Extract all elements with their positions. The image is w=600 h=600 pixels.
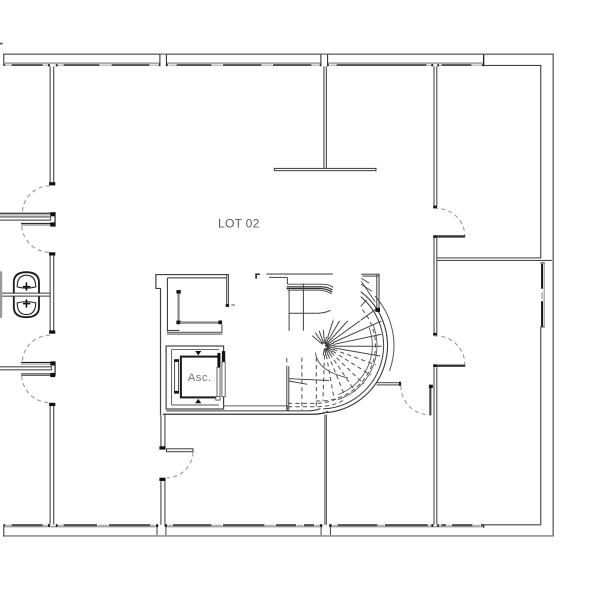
svg-text:Asc.: Asc.: [188, 372, 212, 384]
svg-text:LOT 02: LOT 02: [218, 217, 260, 231]
